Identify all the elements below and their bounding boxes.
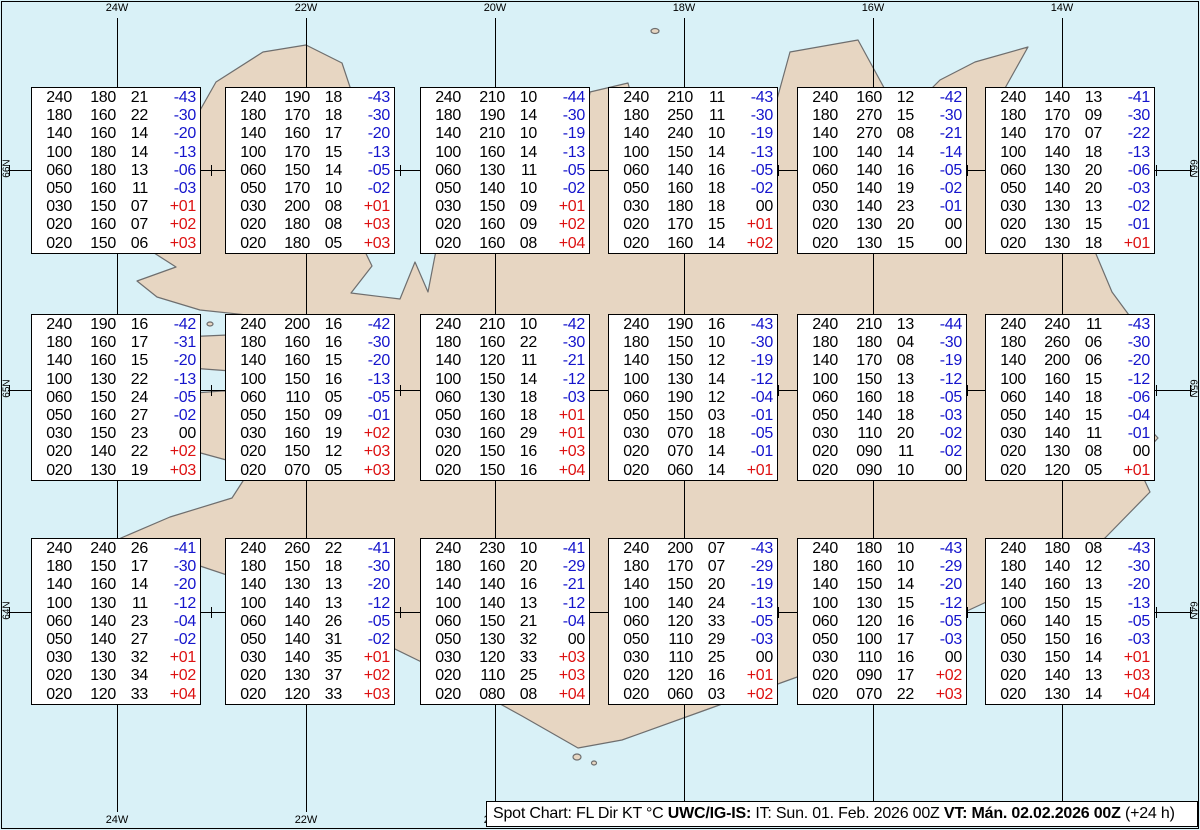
wind-dir-value: 130	[856, 235, 882, 253]
wind-dir-value: 120	[479, 649, 505, 667]
wind-dir-value: 130	[1044, 686, 1070, 704]
spot-row: 10013015-12	[802, 595, 963, 613]
spot-row: 14013013-20	[230, 576, 391, 594]
wind-speed-value: 16	[708, 316, 725, 334]
wind-dir-value: 150	[479, 613, 505, 631]
wind-dir-value: 120	[667, 613, 693, 631]
temp-value: -20	[1128, 576, 1150, 594]
temp-value: -13	[174, 144, 196, 162]
fl-value: 020	[240, 667, 266, 685]
spot-row: 18016010-29	[802, 558, 963, 576]
spot-row: 05014018-03	[802, 407, 963, 425]
wind-dir-value: 070	[667, 425, 693, 443]
temp-value: +01	[747, 667, 773, 685]
spot-row: 06014026-05	[230, 613, 391, 631]
spot-row: 14012011-21	[425, 352, 586, 370]
temp-value: +03	[1124, 667, 1150, 685]
temp-value: -42	[174, 316, 196, 334]
temp-value: -42	[563, 316, 585, 334]
wind-dir-value: 240	[90, 540, 116, 558]
temp-value: -30	[368, 107, 390, 125]
fl-value: 020	[46, 216, 72, 234]
wind-dir-value: 130	[90, 595, 116, 613]
wind-speed-value: 14	[131, 144, 148, 162]
wind-speed-value: 18	[1085, 144, 1102, 162]
wind-dir-value: 160	[856, 389, 882, 407]
wind-dir-value: 160	[479, 334, 505, 352]
temp-value: -31	[174, 334, 196, 352]
wind-speed-value: 16	[520, 576, 537, 594]
fl-value: 060	[1000, 162, 1026, 180]
latitude-label-right: 65N	[1188, 376, 1199, 402]
wind-dir-value: 140	[284, 649, 310, 667]
spot-row: 05010017-03	[802, 631, 963, 649]
wind-speed-value: 10	[520, 316, 537, 334]
temp-value: -01	[368, 407, 390, 425]
wind-speed-value: 08	[325, 216, 342, 234]
wind-speed-value: 11	[132, 180, 148, 198]
fl-value: 180	[435, 558, 461, 576]
vestmannaeyjar-island	[573, 754, 581, 760]
wind-dir-value: 160	[479, 216, 505, 234]
wind-speed-value: 14	[520, 144, 537, 162]
graticule-cross-tick	[211, 385, 212, 396]
wind-dir-value: 170	[1044, 107, 1070, 125]
spot-box: 24026022-4118015018-3014013013-201001401…	[225, 538, 395, 705]
spot-row: 03016029+01	[425, 425, 586, 443]
wind-dir-value: 060	[667, 462, 693, 480]
temp-value: 00	[568, 631, 585, 649]
spot-row: 03015014+01	[990, 649, 1151, 667]
spot-row: 18016017-31	[36, 334, 197, 352]
temp-value: -30	[1128, 107, 1150, 125]
spot-row: 05015016-03	[990, 631, 1151, 649]
spot-row: 05011029-03	[613, 631, 774, 649]
spot-row: 05014031-02	[230, 631, 391, 649]
spot-row: 24021013-44	[802, 316, 963, 334]
wind-speed-value: 15	[1085, 595, 1102, 613]
wind-dir-value: 150	[90, 558, 116, 576]
spot-box: 24021013-4418018004-3014017008-191001501…	[797, 314, 967, 481]
spot-row: 03014023-01	[802, 198, 963, 216]
temp-value: -05	[940, 613, 962, 631]
latitude-label-left: 66N	[2, 156, 13, 182]
wind-dir-value: 140	[1044, 667, 1070, 685]
wind-dir-value: 150	[1044, 631, 1070, 649]
wind-speed-value: 19	[897, 180, 914, 198]
temp-value: -20	[174, 352, 196, 370]
wind-speed-value: 05	[325, 389, 342, 407]
fl-value: 140	[1000, 576, 1026, 594]
wind-dir-value: 150	[284, 443, 310, 461]
temp-value: +01	[559, 407, 585, 425]
spot-row: 03013013-02	[990, 198, 1151, 216]
spot-row: 06013020-06	[990, 162, 1151, 180]
wind-speed-value: 20	[708, 576, 725, 594]
fl-value: 100	[1000, 371, 1026, 389]
temp-value: +01	[747, 462, 773, 480]
spot-row: 02017015+01	[613, 216, 774, 234]
wind-speed-value: 18	[708, 425, 725, 443]
temp-value: -41	[1128, 89, 1150, 107]
spot-row: 03014035+01	[230, 649, 391, 667]
fl-value: 050	[435, 180, 461, 198]
spot-row: 06011005-05	[230, 389, 391, 407]
wind-dir-value: 140	[284, 595, 310, 613]
spot-row: 10016014-13	[425, 144, 586, 162]
fl-value: 140	[240, 576, 266, 594]
wind-speed-value: 25	[520, 667, 537, 685]
temp-value: -29	[563, 558, 585, 576]
wind-dir-value: 240	[1044, 316, 1070, 334]
wind-dir-value: 160	[479, 235, 505, 253]
spot-row: 02014013+03	[990, 667, 1151, 685]
caption-valid-time: VT: Mán. 02.02.2026 00Z	[944, 805, 1121, 822]
graticule-cross-tick	[1156, 165, 1157, 176]
fl-value: 030	[435, 198, 461, 216]
temp-value: -02	[940, 443, 962, 461]
fl-value: 240	[435, 89, 461, 107]
temp-value: -44	[563, 89, 585, 107]
spot-row: 18017009-30	[990, 107, 1151, 125]
wind-dir-value: 180	[90, 89, 116, 107]
wind-speed-value: 13	[325, 595, 342, 613]
fl-value: 030	[812, 649, 838, 667]
wind-speed-value: 33	[325, 686, 342, 704]
fl-value: 100	[240, 371, 266, 389]
spot-row: 18014012-30	[990, 558, 1151, 576]
wind-dir-value: 200	[284, 316, 310, 334]
wind-speed-value: 07	[1085, 125, 1102, 143]
wind-dir-value: 210	[479, 89, 505, 107]
fl-value: 020	[435, 686, 461, 704]
longitude-label-top: 24W	[106, 2, 129, 14]
fl-value: 020	[623, 443, 649, 461]
wind-dir-value: 150	[667, 407, 693, 425]
wind-dir-value: 160	[667, 180, 693, 198]
wind-dir-value: 140	[479, 180, 505, 198]
fl-value: 180	[1000, 558, 1026, 576]
fl-value: 030	[435, 425, 461, 443]
wind-dir-value: 150	[667, 144, 693, 162]
fl-value: 240	[812, 89, 838, 107]
wind-speed-value: 16	[131, 316, 148, 334]
spot-row: 14016013-20	[990, 576, 1151, 594]
fl-value: 030	[240, 198, 266, 216]
fl-value: 050	[240, 180, 266, 198]
caption-issue-time: IT: Sun. 01. Feb. 2026 00Z	[751, 805, 944, 822]
temp-value: -05	[940, 162, 962, 180]
wind-dir-value: 180	[856, 540, 882, 558]
temp-value: -12	[940, 371, 962, 389]
spot-box: 24020007-4318017007-2914015020-191001402…	[608, 538, 778, 705]
wind-dir-value: 160	[479, 144, 505, 162]
fl-value: 030	[1000, 649, 1026, 667]
fl-value: 020	[623, 235, 649, 253]
spot-row: 18016022-30	[36, 107, 197, 125]
wind-speed-value: 13	[520, 595, 537, 613]
spot-row: 24024011-43	[990, 316, 1151, 334]
wind-speed-value: 13	[1085, 198, 1102, 216]
wind-speed-value: 14	[131, 125, 148, 143]
wind-dir-value: 150	[856, 371, 882, 389]
fl-value: 240	[240, 316, 266, 334]
wind-speed-value: 11	[1086, 425, 1102, 443]
wind-dir-value: 140	[1044, 558, 1070, 576]
temp-value: -12	[563, 371, 585, 389]
temp-value: -03	[751, 631, 773, 649]
spot-row: 18019014-30	[425, 107, 586, 125]
wind-dir-value: 140	[856, 407, 882, 425]
wind-speed-value: 27	[131, 407, 148, 425]
wind-dir-value: 150	[479, 371, 505, 389]
fl-value: 240	[46, 89, 72, 107]
fl-value: 180	[812, 334, 838, 352]
graticule-cross-tick	[778, 607, 779, 618]
spot-row: 18016016-30	[230, 334, 391, 352]
temp-value: -13	[563, 144, 585, 162]
temp-value: +03	[170, 235, 196, 253]
wind-speed-value: 18	[325, 558, 342, 576]
temp-value: -02	[1128, 198, 1150, 216]
spot-row: 24019018-43	[230, 89, 391, 107]
temp-value: -05	[940, 389, 962, 407]
spot-row: 10014013-12	[425, 595, 586, 613]
fl-value: 050	[46, 407, 72, 425]
fl-value: 060	[240, 613, 266, 631]
spot-row: 03020008+01	[230, 198, 391, 216]
wind-speed-value: 37	[325, 667, 342, 685]
wind-dir-value: 160	[90, 352, 116, 370]
fl-value: 180	[812, 107, 838, 125]
spot-row: 10015014-12	[425, 371, 586, 389]
wind-dir-value: 120	[1044, 462, 1070, 480]
fl-value: 020	[623, 216, 649, 234]
wind-speed-value: 06	[1085, 352, 1102, 370]
temp-value: -19	[751, 125, 773, 143]
spot-row: 03013032+01	[36, 649, 197, 667]
fl-value: 030	[623, 649, 649, 667]
wind-dir-value: 170	[667, 558, 693, 576]
wind-speed-value: 10	[520, 180, 537, 198]
fl-value: 030	[240, 649, 266, 667]
spot-row: 24021011-43	[613, 89, 774, 107]
temp-value: +01	[559, 425, 585, 443]
fl-value: 140	[623, 125, 649, 143]
wind-speed-value: 18	[708, 180, 725, 198]
temp-value: -30	[940, 107, 962, 125]
wind-dir-value: 130	[90, 371, 116, 389]
spot-chart-screen: { "colors": { "sea": "#d9f1f7", "land": …	[0, 0, 1200, 830]
temp-value: +04	[170, 686, 196, 704]
wind-speed-value: 16	[897, 162, 914, 180]
wind-dir-value: 160	[284, 425, 310, 443]
fl-value: 020	[812, 667, 838, 685]
spot-row: 0201300800	[990, 443, 1151, 461]
wind-dir-value: 190	[667, 316, 693, 334]
temp-value: -02	[368, 631, 390, 649]
spot-row: 18016020-29	[425, 558, 586, 576]
spot-row: 06013018-03	[425, 389, 586, 407]
temp-value: +02	[936, 667, 962, 685]
wind-speed-value: 07	[131, 216, 148, 234]
fl-value: 180	[1000, 107, 1026, 125]
wind-dir-value: 090	[856, 667, 882, 685]
temp-value: -30	[368, 334, 390, 352]
wind-dir-value: 210	[479, 316, 505, 334]
wind-speed-value: 17	[131, 558, 148, 576]
spot-row: 02006014+01	[613, 462, 774, 480]
fl-value: 180	[240, 107, 266, 125]
spot-row: 24021010-42	[425, 316, 586, 334]
caption-offset: (+24 h)	[1121, 805, 1175, 822]
wind-dir-value: 160	[90, 407, 116, 425]
wind-dir-value: 110	[668, 649, 693, 667]
longitude-label-bottom: 24W	[106, 814, 129, 826]
temp-value: -13	[368, 144, 390, 162]
wind-dir-value: 140	[667, 595, 693, 613]
spot-row: 02016009+02	[425, 216, 586, 234]
spot-row: 02006003+02	[613, 686, 774, 704]
fl-value: 060	[812, 162, 838, 180]
fl-value: 100	[623, 595, 649, 613]
wind-speed-value: 16	[897, 649, 914, 667]
wind-speed-value: 19	[325, 425, 342, 443]
wind-speed-value: 20	[897, 216, 914, 234]
spot-box: 24018008-4318014012-3014016013-201001501…	[985, 538, 1155, 705]
wind-dir-value: 160	[856, 558, 882, 576]
spot-row: 14016014-20	[36, 576, 197, 594]
wind-dir-value: 140	[1044, 144, 1070, 162]
fl-value: 030	[623, 425, 649, 443]
spot-box: 24016012-4218027015-3014027008-211001401…	[797, 87, 967, 254]
spot-row: 05014020-03	[990, 180, 1151, 198]
fl-value: 020	[1000, 462, 1026, 480]
fl-value: 240	[623, 89, 649, 107]
spot-row: 06014018-06	[990, 389, 1151, 407]
spot-row: 02013019+03	[36, 462, 197, 480]
temp-value: -12	[563, 595, 585, 613]
spot-row: 24018021-43	[36, 89, 197, 107]
temp-value: +02	[364, 667, 390, 685]
fl-value: 140	[1000, 125, 1026, 143]
temp-value: -14	[940, 144, 962, 162]
spot-row: 18027015-30	[802, 107, 963, 125]
wind-dir-value: 130	[479, 631, 505, 649]
spot-row: 03011020-02	[802, 425, 963, 443]
temp-value: +03	[936, 686, 962, 704]
fl-value: 240	[1000, 540, 1026, 558]
temp-value: +01	[170, 649, 196, 667]
spot-row: 06015014-05	[230, 162, 391, 180]
wind-dir-value: 150	[479, 443, 505, 461]
spot-row: 05017010-02	[230, 180, 391, 198]
spot-row: 06015021-04	[425, 613, 586, 631]
wind-speed-value: 10	[708, 125, 725, 143]
wind-dir-value: 170	[284, 107, 310, 125]
fl-value: 020	[435, 235, 461, 253]
wind-dir-value: 180	[667, 198, 693, 216]
temp-value: -21	[563, 576, 585, 594]
fl-value: 060	[623, 162, 649, 180]
wind-speed-value: 11	[521, 162, 537, 180]
temp-value: -02	[940, 180, 962, 198]
fl-value: 030	[812, 425, 838, 443]
fl-value: 140	[812, 576, 838, 594]
spot-row: 10016015-12	[990, 371, 1151, 389]
wind-dir-value: 140	[667, 162, 693, 180]
fl-value: 240	[240, 540, 266, 558]
spot-box: 24018021-4318016022-3014016014-201001801…	[31, 87, 201, 254]
wind-dir-value: 160	[90, 180, 116, 198]
wind-dir-value: 150	[856, 576, 882, 594]
fl-value: 050	[623, 180, 649, 198]
temp-value: -03	[563, 389, 585, 407]
wind-speed-value: 14	[131, 576, 148, 594]
wind-speed-value: 10	[520, 125, 537, 143]
fl-value: 240	[812, 316, 838, 334]
wind-speed-value: 09	[520, 216, 537, 234]
wind-speed-value: 10	[708, 334, 725, 352]
wind-dir-value: 120	[284, 686, 310, 704]
fl-value: 020	[1000, 443, 1026, 461]
temp-value: +02	[559, 216, 585, 234]
wind-dir-value: 150	[284, 371, 310, 389]
caption-text-1: Spot Chart: FL Dir KT °C	[493, 805, 668, 822]
spot-row: 18015010-30	[613, 334, 774, 352]
wind-dir-value: 160	[90, 576, 116, 594]
temp-value: +03	[364, 686, 390, 704]
temp-value: -05	[368, 613, 390, 631]
spot-box: 24020016-4218016016-3014016015-201001501…	[225, 314, 395, 481]
spot-row: 03007018-05	[613, 425, 774, 443]
fl-value: 240	[240, 89, 266, 107]
spot-box: 24014013-4118017009-3014017007-221001401…	[985, 87, 1155, 254]
fl-value: 060	[1000, 389, 1026, 407]
wind-dir-value: 140	[479, 576, 505, 594]
wind-speed-value: 24	[131, 389, 148, 407]
fl-value: 100	[623, 371, 649, 389]
temp-value: -22	[1128, 125, 1150, 143]
fl-value: 050	[1000, 407, 1026, 425]
wind-dir-value: 160	[667, 235, 693, 253]
spot-row: 02018005+03	[230, 235, 391, 253]
spot-row: 0301801800	[613, 198, 774, 216]
wind-dir-value: 130	[1044, 235, 1070, 253]
wind-speed-value: 11	[709, 107, 725, 125]
spot-box: 24018010-4318016010-2914015014-201001301…	[797, 538, 967, 705]
temp-value: -19	[940, 352, 962, 370]
longitude-label-top: 14W	[1051, 2, 1074, 14]
spot-row: 02018008+03	[230, 216, 391, 234]
spot-row: 02015006+03	[36, 235, 197, 253]
wind-dir-value: 100	[856, 631, 882, 649]
spot-row: 14014016-21	[425, 576, 586, 594]
wind-speed-value: 14	[708, 443, 725, 461]
temp-value: -02	[174, 407, 196, 425]
wind-speed-value: 27	[131, 631, 148, 649]
temp-value: -20	[368, 576, 390, 594]
temp-value: -43	[1128, 316, 1150, 334]
fl-value: 180	[1000, 334, 1026, 352]
spot-row: 02007005+03	[230, 462, 391, 480]
wind-speed-value: 16	[708, 667, 725, 685]
wind-speed-value: 14	[897, 144, 914, 162]
spot-row: 14015014-20	[802, 576, 963, 594]
temp-value: -20	[368, 352, 390, 370]
fl-value: 100	[623, 144, 649, 162]
temp-value: +03	[559, 443, 585, 461]
